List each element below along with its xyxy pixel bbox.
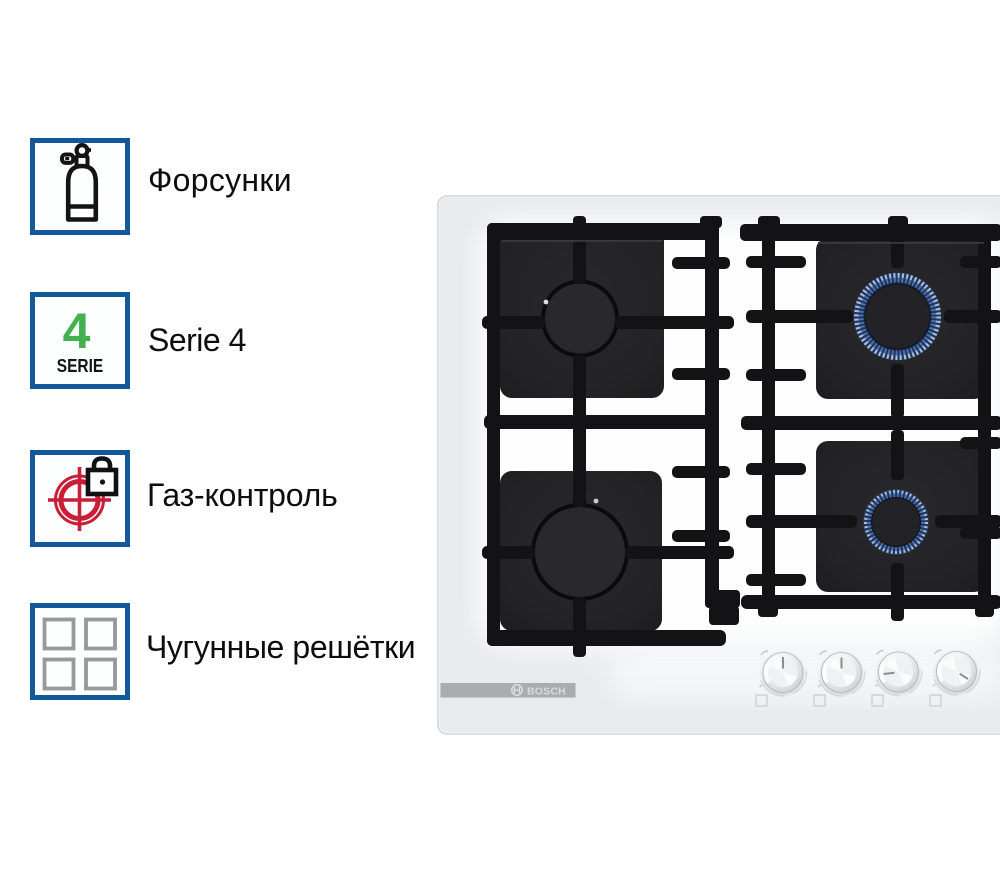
svg-text:BOSCH: BOSCH: [527, 686, 566, 698]
